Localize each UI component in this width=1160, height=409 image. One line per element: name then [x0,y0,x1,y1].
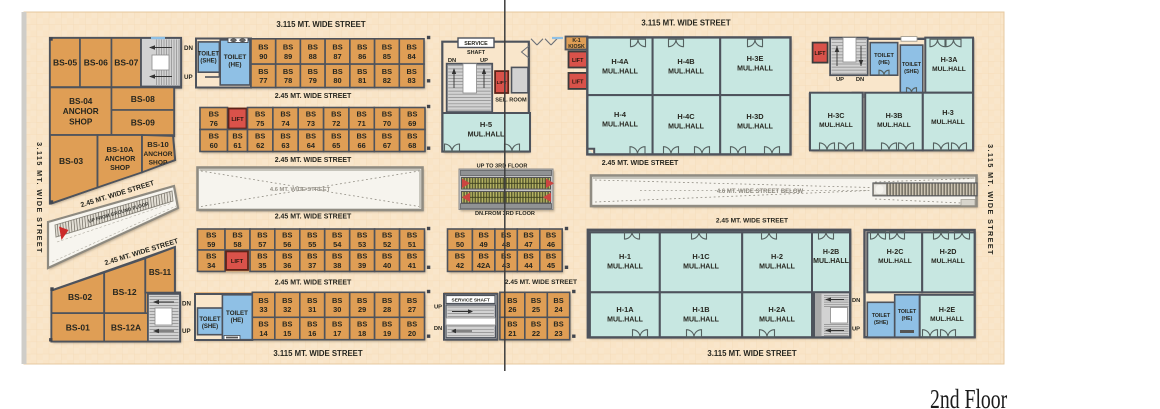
svg-text:H-1: H-1 [619,252,631,261]
svg-text:BS: BS [307,252,317,261]
svg-text:2.45 MT. WIDE STREET: 2.45 MT. WIDE STREET [505,279,577,286]
svg-text:BS: BS [507,319,517,328]
svg-text:MUL.HALL: MUL.HALL [819,122,853,129]
svg-text:BS: BS [407,131,417,140]
svg-text:DN: DN [856,77,864,83]
svg-text:LIFT: LIFT [231,259,244,265]
svg-text:48: 48 [502,240,510,249]
svg-text:4.6 MT. WIDE STREET: 4.6 MT. WIDE STREET [270,187,331,193]
svg-text:BS: BS [282,319,292,328]
svg-text:BS: BS [382,109,392,118]
svg-text:H-2E: H-2E [939,305,956,314]
svg-text:68: 68 [408,141,416,150]
svg-text:(HE): (HE) [228,62,241,69]
svg-text:TOILET: TOILET [224,54,247,61]
svg-text:19: 19 [383,329,391,338]
svg-text:BS: BS [382,296,392,305]
svg-text:71: 71 [357,119,365,128]
svg-text:42A: 42A [477,261,491,270]
svg-text:BS: BS [501,230,511,239]
svg-text:TOILET: TOILET [898,309,917,315]
svg-text:BS: BS [258,42,268,51]
svg-text:BS: BS [209,131,219,140]
svg-text:56: 56 [283,240,291,249]
svg-text:14: 14 [259,329,268,338]
svg-text:57: 57 [258,240,266,249]
svg-text:BS: BS [255,131,265,140]
svg-text:53: 53 [358,240,366,249]
svg-text:25: 25 [532,305,540,314]
svg-text:DN: DN [184,45,193,52]
svg-text:3.115 MT. WIDE STREET: 3.115 MT. WIDE STREET [707,349,796,358]
svg-text:39: 39 [358,261,366,270]
svg-text:60: 60 [210,141,218,150]
svg-text:BS: BS [206,252,216,261]
svg-text:BS: BS [282,296,292,305]
svg-text:66: 66 [357,141,365,150]
svg-text:81: 81 [358,76,366,85]
svg-text:64: 64 [307,141,316,150]
svg-text:MUL.HALL: MUL.HALL [468,130,505,139]
svg-text:49: 49 [480,240,488,249]
svg-text:BS: BS [407,296,417,305]
svg-text:76: 76 [210,119,218,128]
svg-text:44: 44 [524,261,533,270]
svg-text:BS-12A: BS-12A [111,322,141,332]
svg-text:MUL.HALL: MUL.HALL [759,264,795,271]
svg-text:72: 72 [332,119,340,128]
svg-text:(HE): (HE) [902,316,913,322]
svg-text:46: 46 [547,240,555,249]
svg-text:BS: BS [282,252,292,261]
svg-text:2.45 MT. WIDE STREET: 2.45 MT. WIDE STREET [716,218,788,225]
svg-text:BS: BS [306,131,316,140]
svg-text:BS: BS [523,252,533,261]
svg-text:MUL.HALL: MUL.HALL [683,264,719,271]
svg-text:BS: BS [553,296,563,305]
svg-text:BS-12: BS-12 [112,287,136,297]
svg-text:BS-10A: BS-10A [106,145,134,154]
svg-text:18: 18 [358,329,366,338]
svg-text:TOILET: TOILET [872,313,891,319]
svg-text:DN: DN [434,326,442,332]
svg-text:BS-07: BS-07 [114,58,138,68]
svg-text:90: 90 [259,52,267,61]
svg-text:35: 35 [258,261,266,270]
svg-text:(HE): (HE) [231,317,244,324]
svg-text:MUL.HALL: MUL.HALL [607,264,643,271]
svg-text:87: 87 [333,52,341,61]
svg-text:29: 29 [358,305,366,314]
svg-text:DN: DN [852,298,860,304]
svg-text:51: 51 [408,240,416,249]
svg-text:32: 32 [283,305,291,314]
svg-text:H-3B: H-3B [886,111,903,120]
svg-text:BS: BS [258,319,268,328]
svg-text:BS: BS [479,252,489,261]
svg-text:54: 54 [333,240,342,249]
svg-text:BS: BS [357,252,367,261]
svg-text:BS: BS [455,230,465,239]
svg-text:86: 86 [358,52,366,61]
svg-text:BS: BS [531,319,541,328]
svg-text:3.115 MT. WIDE STREET: 3.115 MT. WIDE STREET [641,19,730,28]
svg-text:BS: BS [257,252,267,261]
svg-text:BS: BS [531,296,541,305]
svg-text:UP: UP [434,305,442,311]
svg-text:SERVICE: SERVICE [464,41,488,47]
svg-text:UP: UP [184,74,193,81]
svg-text:MUL.HALL: MUL.HALL [931,119,965,126]
svg-text:26: 26 [508,305,516,314]
svg-text:BS: BS [332,230,342,239]
svg-text:77: 77 [259,76,267,85]
svg-text:16: 16 [308,329,316,338]
svg-text:BS: BS [357,67,367,76]
svg-text:28: 28 [383,305,391,314]
svg-text:UP: UP [182,328,191,335]
svg-text:MUL.HALL: MUL.HALL [737,124,773,131]
svg-text:24: 24 [554,305,563,314]
svg-text:52: 52 [383,240,391,249]
svg-text:BS: BS [258,67,268,76]
svg-text:SHOP: SHOP [149,160,168,167]
svg-text:BS: BS [209,109,219,118]
svg-text:(SHE): (SHE) [200,59,216,65]
svg-text:BS: BS [283,67,293,76]
svg-text:(SHE): (SHE) [202,324,218,330]
svg-text:H-2C: H-2C [887,247,904,256]
svg-text:43: 43 [502,261,510,270]
svg-text:61: 61 [233,141,241,150]
svg-text:BS: BS [357,296,367,305]
svg-text:MUL.HALL: MUL.HALL [602,69,638,76]
svg-text:BS-05: BS-05 [53,58,77,68]
svg-text:TOILET: TOILET [199,317,221,323]
svg-text:BS-10: BS-10 [147,140,169,149]
svg-text:MUL.HALL: MUL.HALL [930,316,964,323]
svg-text:BS: BS [280,109,290,118]
svg-text:47: 47 [524,240,532,249]
svg-text:38: 38 [333,261,341,270]
svg-text:83: 83 [408,76,416,85]
svg-text:69: 69 [408,119,416,128]
svg-text:H-3: H-3 [942,108,954,117]
svg-text:TOILET: TOILET [226,310,248,317]
svg-text:H-1A: H-1A [616,305,634,314]
svg-text:82: 82 [383,76,391,85]
svg-text:BS: BS [546,230,556,239]
svg-text:H-3D: H-3D [746,112,764,121]
svg-text:BS: BS [232,230,242,239]
svg-text:BS-01: BS-01 [66,322,90,332]
svg-text:H-1C: H-1C [692,252,710,261]
svg-text:58: 58 [233,240,241,249]
svg-text:TOILET: TOILET [902,62,922,68]
svg-text:H-4C: H-4C [677,112,695,121]
svg-text:BS: BS [382,230,392,239]
svg-text:BS: BS [280,131,290,140]
svg-text:LIFT: LIFT [815,51,827,57]
svg-text:27: 27 [408,305,416,314]
svg-text:BS: BS [255,109,265,118]
svg-text:BS: BS [332,252,342,261]
svg-text:79: 79 [309,76,317,85]
svg-text:BS: BS [283,42,293,51]
svg-text:BS: BS [357,319,367,328]
svg-text:4.6 MT. WIDE STREET BELOW: 4.6 MT. WIDE STREET BELOW [717,189,804,195]
svg-text:SHOP: SHOP [69,117,93,126]
svg-text:BS: BS [455,252,465,261]
svg-text:75: 75 [256,119,264,128]
svg-text:BS-11: BS-11 [149,268,172,277]
svg-text:73: 73 [307,119,315,128]
svg-text:74: 74 [281,119,290,128]
svg-text:BS: BS [382,131,392,140]
svg-text:3.115 MT. WIDE STREET: 3.115 MT. WIDE STREET [35,142,44,254]
svg-text:2.45 MT. WIDE STREET: 2.45 MT. WIDE STREET [275,157,352,164]
svg-text:H-2B: H-2B [823,249,839,256]
svg-text:59: 59 [207,240,215,249]
svg-text:TOILET: TOILET [198,52,220,58]
svg-text:BS: BS [479,230,489,239]
svg-text:ANCHOR: ANCHOR [105,156,136,163]
svg-text:85: 85 [383,52,391,61]
svg-text:MUL.HALL: MUL.HALL [931,258,965,265]
svg-text:22: 22 [532,329,540,338]
svg-text:H-3C: H-3C [828,111,845,120]
svg-text:SHOP: SHOP [110,165,130,172]
svg-text:H-5: H-5 [480,120,493,129]
svg-text:BS: BS [332,67,342,76]
svg-text:H-2: H-2 [771,252,783,261]
svg-text:BS: BS [357,230,367,239]
svg-text:BS: BS [257,230,267,239]
svg-text:MUL.HALL: MUL.HALL [877,122,911,129]
svg-text:H-1B: H-1B [692,305,709,314]
svg-text:MUL.HALL: MUL.HALL [683,317,719,324]
svg-text:H-4B: H-4B [677,57,694,66]
svg-text:UP TO 3RD FLOOR: UP TO 3RD FLOOR [477,163,528,169]
svg-text:LIFT: LIFT [572,80,584,86]
svg-text:SEL. ROOM: SEL. ROOM [495,98,527,104]
svg-text:BS: BS [407,109,417,118]
svg-text:BS: BS [407,67,417,76]
svg-text:(HE): (HE) [878,60,890,66]
svg-text:31: 31 [308,305,316,314]
svg-text:BS: BS [501,252,511,261]
svg-text:BS-04: BS-04 [69,97,93,106]
svg-text:MUL.HALL: MUL.HALL [813,258,849,265]
svg-text:MUL.HALL: MUL.HALL [932,66,966,73]
svg-text:MUL.HALL: MUL.HALL [878,258,912,265]
svg-text:DN: DN [182,301,191,308]
svg-text:(SHE): (SHE) [904,69,919,75]
svg-text:62: 62 [256,141,264,150]
svg-text:ANCHOR: ANCHOR [63,107,99,116]
svg-text:BS: BS [382,319,392,328]
svg-text:BS: BS [407,230,417,239]
svg-text:BS: BS [356,131,366,140]
svg-text:17: 17 [333,329,341,338]
svg-text:BS: BS [307,230,317,239]
svg-text:BS: BS [332,42,342,51]
svg-text:ANCHOR: ANCHOR [144,151,173,158]
svg-text:3.115 MT. WIDE STREET: 3.115 MT. WIDE STREET [986,144,995,256]
svg-text:80: 80 [333,76,341,85]
svg-text:H-2D: H-2D [940,247,957,256]
svg-text:BS: BS [332,296,342,305]
svg-text:BS: BS [357,42,367,51]
svg-text:KIOSK: KIOSK [568,44,585,50]
svg-text:UP: UP [836,77,844,83]
svg-text:(SHE): (SHE) [874,320,888,326]
svg-text:BS: BS [331,109,341,118]
svg-text:BS-08: BS-08 [131,94,155,104]
svg-text:30: 30 [333,305,341,314]
svg-text:BS: BS [282,230,292,239]
svg-text:BS: BS [546,252,556,261]
svg-text:67: 67 [383,141,391,150]
svg-text:BS: BS [332,319,342,328]
svg-text:BS: BS [356,109,366,118]
svg-text:63: 63 [281,141,289,150]
svg-text:20: 20 [408,329,416,338]
svg-text:BS: BS [407,319,417,328]
svg-text:BS: BS [258,296,268,305]
svg-text:MUL.HALL: MUL.HALL [668,69,704,76]
svg-text:UP: UP [852,327,860,333]
svg-text:BS: BS [382,67,392,76]
svg-text:BS-06: BS-06 [84,58,108,68]
svg-text:55: 55 [308,240,316,249]
svg-text:SHAFT: SHAFT [467,50,486,56]
svg-text:3.115 MT. WIDE STREET: 3.115 MT. WIDE STREET [273,349,362,358]
svg-text:BS: BS [553,319,563,328]
svg-text:34: 34 [207,261,216,270]
svg-text:MUL.HALL: MUL.HALL [607,317,643,324]
svg-text:BS: BS [232,131,242,140]
svg-text:H-4: H-4 [614,110,627,119]
svg-text:H-2A: H-2A [768,305,786,314]
svg-text:3.115 MT. WIDE STREET: 3.115 MT. WIDE STREET [276,20,365,29]
svg-text:MUL.HALL: MUL.HALL [668,124,704,131]
svg-text:23: 23 [554,329,562,338]
svg-text:2.45 MT. WIDE STREET: 2.45 MT. WIDE STREET [275,280,352,287]
svg-text:84: 84 [408,52,417,61]
svg-text:BS: BS [307,319,317,328]
svg-text:BS: BS [331,131,341,140]
svg-text:LIFT: LIFT [231,117,244,123]
svg-text:65: 65 [332,141,340,150]
svg-text:BS: BS [382,42,392,51]
svg-text:TOILET: TOILET [874,53,894,59]
svg-text:BS: BS [206,230,216,239]
svg-text:MUL.HALL: MUL.HALL [759,317,795,324]
svg-text:50: 50 [456,240,464,249]
svg-text:H-4A: H-4A [611,57,629,66]
svg-text:BS: BS [308,42,318,51]
svg-text:89: 89 [284,52,292,61]
svg-text:BS: BS [407,252,417,261]
svg-text:BS-09: BS-09 [131,118,155,128]
svg-text:36: 36 [283,261,291,270]
svg-text:88: 88 [309,52,317,61]
svg-text:H-3E: H-3E [747,54,764,63]
svg-text:BS: BS [308,67,318,76]
svg-text:2.45 MT. WIDE STREET: 2.45 MT. WIDE STREET [275,214,352,221]
svg-text:MUL.HALL: MUL.HALL [602,122,638,129]
svg-text:40: 40 [383,261,391,270]
svg-text:BS: BS [507,296,517,305]
svg-text:2.45 MT. WIDE STREET: 2.45 MT. WIDE STREET [602,160,679,167]
svg-text:BS-02: BS-02 [68,292,92,302]
svg-text:33: 33 [259,305,267,314]
svg-text:BS: BS [382,252,392,261]
svg-text:BS-03: BS-03 [59,156,83,166]
svg-text:41: 41 [408,261,416,270]
svg-text:37: 37 [308,261,316,270]
svg-text:2.45 MT. WIDE STREET: 2.45 MT. WIDE STREET [275,93,352,100]
svg-text:70: 70 [383,119,391,128]
svg-text:H-3A: H-3A [941,55,958,64]
svg-text:15: 15 [283,329,291,338]
svg-text:SERVICE SHAFT: SERVICE SHAFT [452,298,490,304]
svg-text:BS: BS [407,42,417,51]
svg-text:BS: BS [307,296,317,305]
svg-text:78: 78 [284,76,292,85]
svg-text:BS: BS [306,109,316,118]
svg-text:45: 45 [547,261,555,270]
svg-text:LIFT: LIFT [572,58,584,64]
svg-text:42: 42 [456,261,464,270]
svg-text:MUL.HALL: MUL.HALL [737,66,773,73]
svg-text:21: 21 [508,329,516,338]
svg-text:BS: BS [523,230,533,239]
